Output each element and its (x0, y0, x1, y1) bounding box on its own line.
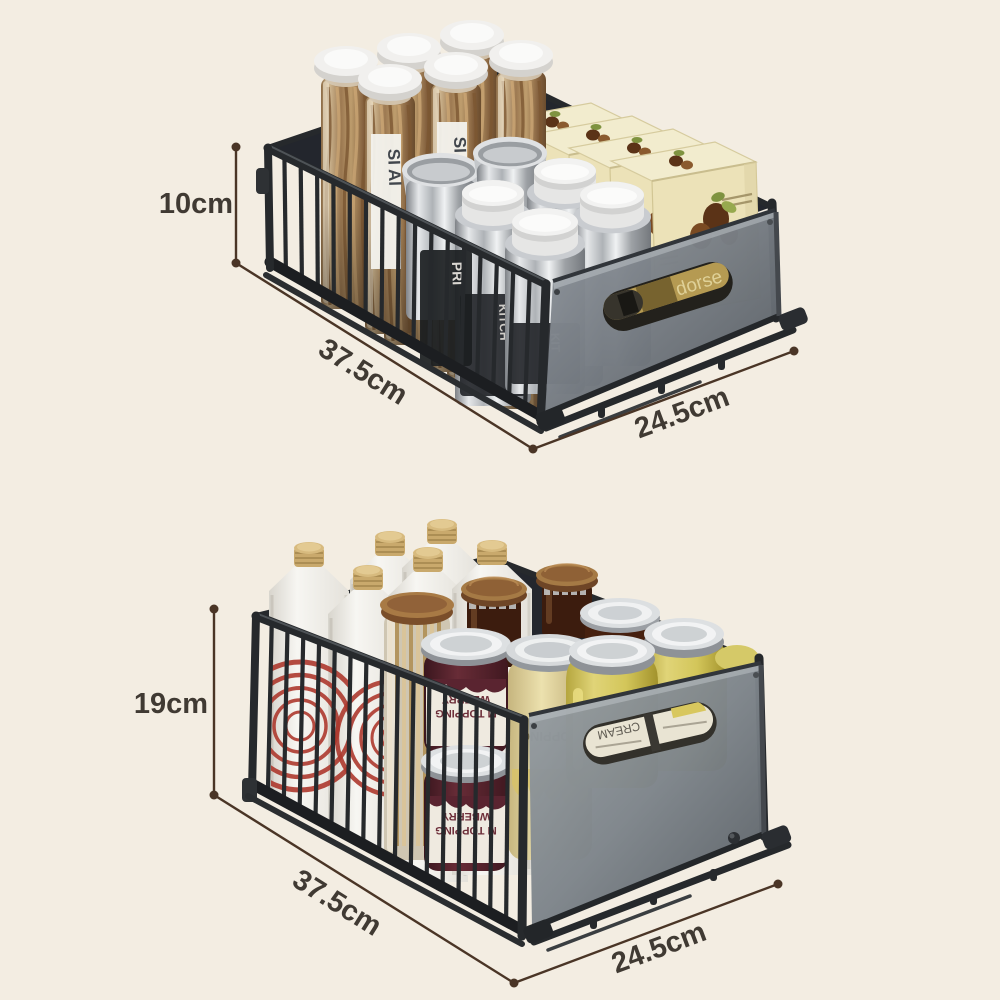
svg-text:10cm: 10cm (159, 188, 233, 220)
svg-text:WBERRY: WBERRY (441, 810, 490, 822)
svg-text:19cm: 19cm (134, 688, 208, 720)
svg-text:SI Al: SI Al (384, 148, 404, 186)
